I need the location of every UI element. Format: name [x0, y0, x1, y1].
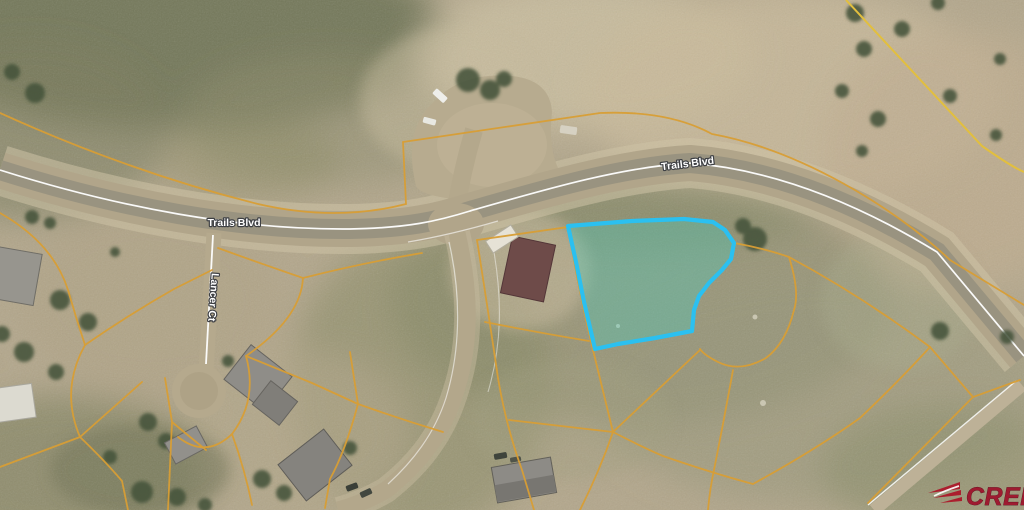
aerial-map[interactable]: Trails Blvd Trails Blvd Lancer Ct CREN — [0, 0, 1024, 510]
listing-map-container: Trails Blvd Trails Blvd Lancer Ct CREN — [0, 0, 1024, 510]
road-label-trails-blvd-west: Trails Blvd — [207, 217, 260, 229]
cren-logo-text: CREN — [966, 483, 1024, 510]
house — [0, 383, 36, 422]
lancer-ct-culdesac-center — [180, 372, 218, 410]
